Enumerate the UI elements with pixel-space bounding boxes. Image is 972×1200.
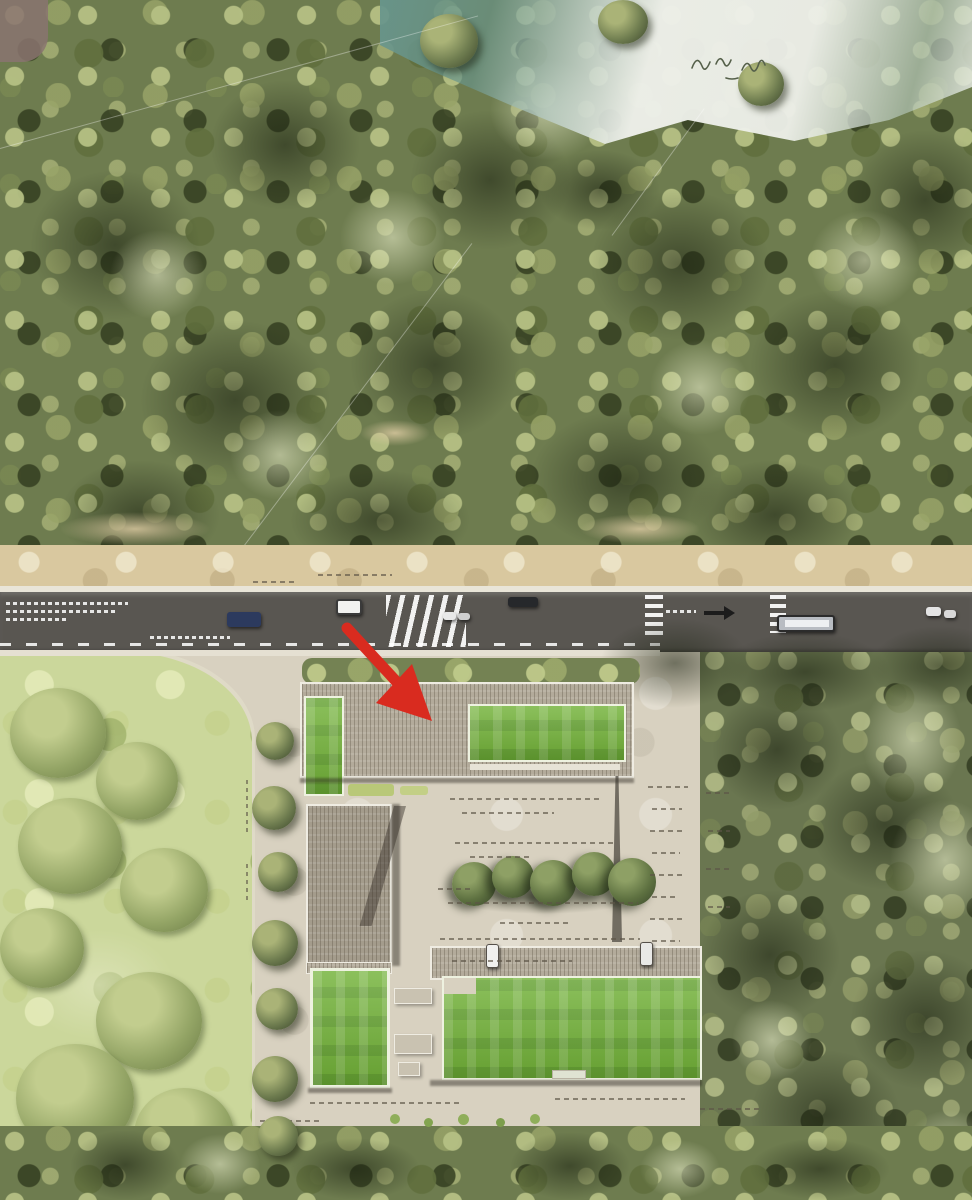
forest-shadow [290,1138,420,1200]
forest-shadow [70,1130,180,1200]
plan-annotation [708,830,730,832]
plan-annotation [470,856,532,858]
road-paint-text [6,602,128,605]
green-roof-south [442,976,702,1080]
plan-annotation [648,786,688,788]
link-bridge [394,1034,432,1054]
plan-annotation [706,868,732,870]
bus-roof [785,620,829,627]
plan-annotation [706,792,732,794]
courtyard-tree [492,856,534,898]
link-bridge [398,1062,420,1076]
planter [348,784,394,796]
handwritten-annotation [686,46,782,86]
plan-annotation [438,888,470,890]
bush [458,1114,469,1125]
car-small [458,613,470,620]
forest-clearing [732,1000,812,1080]
shore-tree [420,14,478,68]
plan-annotation-vertical [246,776,248,832]
green-roof-notch [444,978,476,994]
roof-hatch [552,1070,586,1079]
corner-ground-patch [0,0,48,62]
street-tree [252,1056,298,1102]
side-road-dashes [150,636,230,639]
plan-annotation [652,852,680,854]
plan-annotation [455,842,615,844]
canopy-shadow [750,290,920,440]
bush [424,1118,433,1127]
green-roof-southwest [310,968,390,1088]
red-locator-arrow [330,612,450,734]
site-plan-rendering [0,0,972,1200]
shore-tree [598,0,648,44]
park-tree [96,742,178,820]
bush [390,1114,400,1124]
plan-annotation [652,940,680,942]
car-dark [508,597,538,607]
street-tree [256,722,294,760]
bush [530,1114,540,1124]
canopy-highlight [810,210,920,310]
canopy-shadow [210,80,360,210]
canopy-highlight [230,410,330,500]
parked-car [486,944,499,968]
plan-annotation [500,922,572,924]
lane-direction-arrow-head [724,606,735,620]
courtyard-tree [452,862,496,906]
plan-annotation [452,960,572,962]
plan-annotation [462,812,554,814]
forest-highlight [640,1140,720,1198]
street-tree [252,786,296,830]
street-tree [256,988,298,1030]
courtyard-tree [608,858,656,906]
dimension-annotation [253,581,295,583]
cycle-crossing-marks [666,610,696,613]
car-small [926,607,941,616]
building-shadow [300,778,634,783]
plan-annotation [440,938,640,940]
street-tree [258,852,298,892]
plan-annotation [708,906,730,908]
road-paint-text [6,618,68,621]
roof-walkway [470,764,620,770]
plan-annotation [652,808,682,810]
sandy-gap [580,514,700,544]
plan-annotation [555,1098,685,1100]
sandy-gap [60,512,210,546]
street-tree [252,920,298,966]
sandy-gap [360,420,430,446]
green-roof-north [468,704,626,762]
plan-annotation [448,902,638,904]
courtyard-tree [530,860,576,906]
building-shadow [308,1088,392,1093]
park-tree [120,848,208,932]
forest-highlight [180,1134,260,1194]
plan-annotation [700,1108,762,1110]
bus [777,615,835,632]
road-paint-text [6,610,118,613]
plan-annotation [650,830,686,832]
shore-rocks [540,150,660,230]
canopy-highlight [340,190,445,285]
parked-car [640,942,653,966]
plan-annotation [310,1102,460,1104]
forest-shadow [510,1132,630,1200]
park-tree [18,798,122,894]
canopy-shadow [350,290,520,440]
lane-direction-arrow [704,611,724,615]
park-tree [10,688,106,778]
car-blue [227,612,261,627]
plan-annotation [450,798,600,800]
dimension-annotation [318,574,392,576]
road-tree-shadow [720,632,890,712]
plan-annotation [650,874,684,876]
link-bridge [394,988,432,1004]
planter [400,786,428,795]
car-small [944,610,956,618]
plan-annotation-vertical [246,860,248,900]
street-tree [258,1116,298,1156]
building-shadow [430,1080,702,1086]
plan-annotation [652,896,678,898]
plan-annotation [650,918,682,920]
park-tree [0,908,84,988]
canopy-highlight [650,340,750,435]
south-building-roof [430,946,702,980]
bush [496,1118,505,1127]
forest-shadow [750,1138,890,1200]
canopy-highlight [110,230,205,320]
